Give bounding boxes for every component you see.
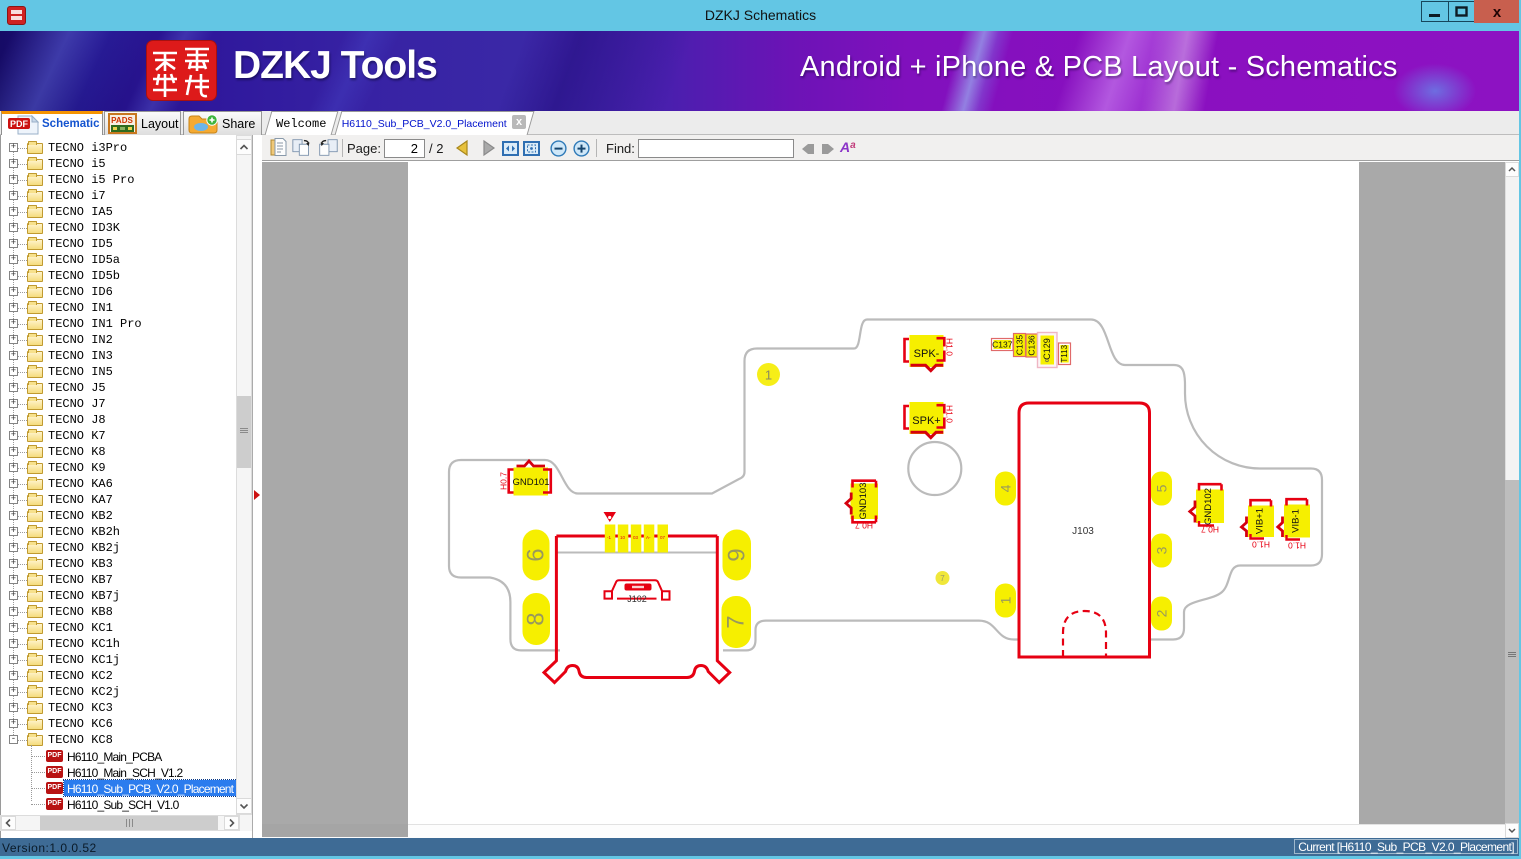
svg-text:C135: C135 — [1015, 335, 1025, 356]
svg-text:2: 2 — [1154, 609, 1170, 617]
svg-text:H0.7: H0.7 — [499, 472, 509, 490]
svg-text:03: 03 — [633, 535, 639, 540]
svg-text:C136: C136 — [1027, 335, 1037, 356]
svg-text:H0.7: H0.7 — [1201, 525, 1219, 535]
svg-text:8: 8 — [523, 612, 550, 625]
svg-text:9: 9 — [724, 548, 751, 561]
svg-text:T113: T113 — [1060, 344, 1069, 362]
svg-text:7: 7 — [940, 574, 945, 583]
svg-text:GND102: GND102 — [1203, 488, 1214, 525]
svg-text:SPK-: SPK- — [914, 348, 940, 360]
svg-text:PADS: PADS — [111, 116, 133, 125]
svg-text:GND103: GND103 — [858, 483, 869, 520]
svg-text:VIB+1: VIB+1 — [1255, 508, 1266, 534]
svg-text:C137: C137 — [992, 340, 1013, 350]
svg-text:H1.0: H1.0 — [1252, 540, 1270, 550]
svg-text:3: 3 — [1154, 546, 1170, 554]
svg-text:J102: J102 — [627, 594, 647, 604]
svg-text:H1.0: H1.0 — [945, 405, 955, 423]
svg-text:SPK+: SPK+ — [912, 415, 940, 427]
svg-text:J103: J103 — [1072, 526, 1094, 537]
svg-text:PDF: PDF — [10, 119, 29, 129]
svg-text:4: 4 — [998, 484, 1014, 492]
svg-text:H0.7: H0.7 — [855, 521, 873, 531]
svg-text:6: 6 — [523, 548, 550, 561]
svg-text:C129: C129 — [1042, 338, 1052, 360]
svg-text:GND101: GND101 — [513, 477, 550, 488]
svg-text:H1.0: H1.0 — [945, 338, 955, 356]
svg-text:5: 5 — [1154, 484, 1170, 492]
svg-text:7: 7 — [723, 615, 750, 628]
svg-text:1: 1 — [998, 596, 1014, 604]
svg-text:x: x — [1493, 4, 1502, 21]
svg-text:1: 1 — [765, 368, 772, 383]
svg-text:10: 10 — [620, 535, 626, 540]
svg-text:VIB-1: VIB-1 — [1291, 509, 1302, 533]
svg-text:-1: -1 — [607, 535, 611, 540]
svg-text:A-: A- — [646, 535, 651, 540]
svg-text:H1.0: H1.0 — [1288, 541, 1306, 551]
svg-text:07: 07 — [660, 535, 666, 540]
